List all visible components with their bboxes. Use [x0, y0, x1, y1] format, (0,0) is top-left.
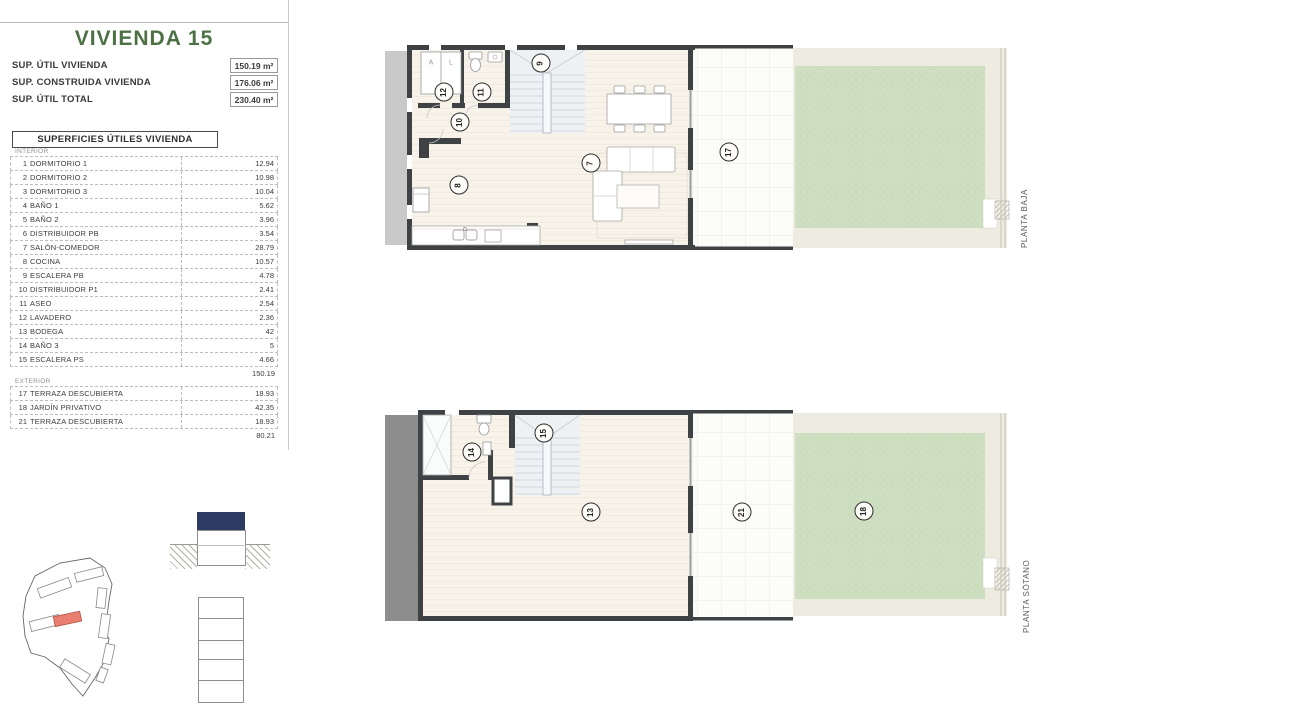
summary-row: SUP. ÚTIL TOTAL 230.40 m² [12, 92, 278, 107]
exterior-table: 17TERRAZA DESCUBIERTA18.93 18JARDÍN PRIV… [10, 386, 278, 442]
row-area: 28.79 [181, 241, 277, 254]
stack-floor [198, 597, 244, 619]
site-plan-thumbnail [12, 556, 142, 711]
row-num: 13 [11, 327, 30, 336]
table-row: 5BAÑO 23.96 [10, 213, 278, 227]
room-marker-10: 10 [451, 113, 470, 132]
row-name: TERRAZA DESCUBIERTA [30, 389, 181, 398]
floor-plan-planta-sotano: 14 15 13 21 18 [385, 408, 1015, 628]
room-marker-21: 21 [733, 503, 752, 522]
row-area: 18.93 [181, 415, 277, 428]
glass-door [690, 90, 692, 128]
row-area: 12.94 [181, 157, 277, 170]
row-num: 7 [11, 243, 30, 252]
room-marker-label: 21 [738, 508, 746, 517]
row-num: 5 [11, 215, 30, 224]
room-marker-11: 11 [473, 83, 492, 102]
retaining-wall-strip [385, 415, 418, 621]
row-name: DORMITORIO 3 [30, 187, 181, 196]
row-area: 4.78 [181, 269, 277, 282]
section-diagram-highlight-floor [197, 512, 245, 530]
planta-sotano-drawing [385, 408, 1015, 628]
interior-section-label: INTERIOR [15, 148, 48, 155]
row-area: 10.04 [181, 185, 277, 198]
row-name: DISTRIBUIDOR P1 [30, 285, 181, 294]
table-row: 10DISTRIBUIDOR P12.41 [10, 283, 278, 297]
room-marker-14: 14 [463, 443, 482, 462]
sink [488, 52, 502, 62]
tv-unit [625, 240, 673, 244]
room-marker-8: 8 [450, 176, 469, 195]
sheet-frame-line-right [288, 0, 289, 450]
room-marker-label: 10 [456, 118, 464, 127]
floor-plan-planta-baja: A L 9 12 11 10 8 7 17 [385, 43, 1015, 255]
room-marker-label: 17 [725, 148, 733, 157]
row-num: 9 [11, 271, 30, 280]
table-row: 3DORMITORIO 310.04 [10, 185, 278, 199]
row-name: ASEO [30, 299, 181, 308]
table-row: 12LAVADERO2.36 [10, 311, 278, 325]
plan-label-planta-sotano: PLANTA SÓTANO [1022, 528, 1031, 633]
row-name: DORMITORIO 1 [30, 159, 181, 168]
table-row: 8COCINA10.57 [10, 255, 278, 269]
row-num: 3 [11, 187, 30, 196]
row-area: 10.57 [181, 255, 277, 268]
row-num: 17 [11, 389, 30, 398]
row-area: 2.54 [181, 297, 277, 310]
table-row: 9ESCALERA PB4.78 [10, 269, 278, 283]
glass-window [690, 533, 692, 576]
stack-diagram [198, 598, 244, 708]
row-name: DORMITORIO 2 [30, 173, 181, 182]
row-name: DISTRIBUIDOR PB [30, 229, 181, 238]
toilet [469, 52, 482, 72]
room-marker-label: 11 [478, 88, 486, 96]
dining-table [607, 86, 671, 132]
room-marker-15: 15 [535, 424, 554, 443]
fridge [413, 188, 429, 212]
row-area: 5 [181, 339, 277, 352]
row-name: BAÑO 2 [30, 215, 181, 224]
stack-floor [198, 680, 244, 703]
row-area: 2.41 [181, 283, 277, 296]
room-marker-label: 18 [860, 507, 868, 516]
room-marker-label: 12 [440, 88, 448, 97]
row-num: 6 [11, 229, 30, 238]
sheet-frame-line-top [0, 22, 288, 23]
table-row: 14BAÑO 35 [10, 339, 278, 353]
row-name: ESCALERA PS [30, 355, 181, 364]
row-num: 1 [11, 159, 30, 168]
row-area: 18.93 [181, 387, 277, 400]
row-name: BODEGA [30, 327, 181, 336]
row-area: 3.54 [181, 227, 277, 240]
room-marker-12: 12 [435, 83, 454, 102]
table-row: 15ESCALERA PS4.66 [10, 353, 278, 367]
room-marker-17: 17 [720, 143, 739, 162]
table-row: 21TERRAZA DESCUBIERTA18.93 [10, 415, 278, 429]
row-name: TERRAZA DESCUBIERTA [30, 417, 181, 426]
planta-baja-drawing [385, 43, 1015, 255]
table-row: 6DISTRIBUIDOR PB3.54 [10, 227, 278, 241]
interior-table: 1DORMITORIO 112.94 2DORMITORIO 210.98 3D… [10, 156, 278, 380]
table-row: 2DORMITORIO 210.98 [10, 171, 278, 185]
terrace-17 [693, 48, 793, 248]
row-num: 2 [11, 173, 30, 182]
summary-value: 150.19 m² [230, 58, 278, 73]
row-num: 8 [11, 257, 30, 266]
ground-hatch-right [245, 544, 270, 569]
row-num: 11 [11, 299, 30, 308]
shower [423, 415, 451, 475]
table-row: 1DORMITORIO 112.94 [10, 157, 278, 171]
plan-label-planta-baja: PLANTA BAJA [1020, 153, 1029, 248]
row-area: 42.35 [181, 401, 277, 414]
stack-floor [198, 640, 244, 660]
garden [793, 48, 1009, 248]
summary-row: SUP. ÚTIL VIVIENDA 150.19 m² [12, 58, 278, 73]
row-num: 18 [11, 403, 30, 412]
stack-floor [198, 659, 244, 681]
summary-label: SUP. CONSTRUIDA VIVIENDA [12, 77, 230, 88]
ground-hatch-left [170, 544, 197, 569]
row-name: SALÓN-COMEDOR [30, 243, 181, 252]
table-row: 17TERRAZA DESCUBIERTA18.93 [10, 387, 278, 401]
table-row: 13BODEGA42 [10, 325, 278, 339]
table-row: 18JARDÍN PRIVATIVO42.35 [10, 401, 278, 415]
row-num: 4 [11, 201, 30, 210]
closet-label-l: L [449, 60, 453, 67]
room-marker-9: 9 [532, 54, 551, 73]
room-marker-label: 7 [587, 161, 595, 165]
row-num: 15 [11, 355, 30, 364]
garden-18 [793, 413, 1009, 616]
exterior-total: 80.21 [10, 429, 278, 442]
row-name: ESCALERA PB [30, 271, 181, 280]
table-row: 11ASEO2.54 [10, 297, 278, 311]
row-name: COCINA [30, 257, 181, 266]
row-name: LAVADERO [30, 313, 181, 322]
summary-value: 176.06 m² [230, 75, 278, 90]
closet-label-a: A [429, 60, 434, 67]
summary-value: 230.40 m² [230, 92, 278, 107]
row-area: 4.66 [181, 353, 277, 366]
sink [483, 442, 491, 455]
row-name: BAÑO 3 [30, 341, 181, 350]
exterior-section-label: EXTERIOR [15, 378, 51, 385]
room-marker-7: 7 [582, 154, 601, 173]
room-marker-label: 15 [540, 429, 548, 438]
glass-window [690, 438, 692, 486]
summary-row: SUP. CONSTRUIDA VIVIENDA 176.06 m² [12, 75, 278, 90]
page-title: VIVIENDA 15 [0, 27, 288, 51]
room-marker-label: 14 [468, 448, 476, 457]
section-ground-line [197, 545, 244, 546]
summary-label: SUP. ÚTIL VIVIENDA [12, 60, 230, 71]
row-area: 2.36 [181, 311, 277, 324]
party-wall-strip [385, 51, 407, 245]
summary-label: SUP. ÚTIL TOTAL [12, 94, 230, 105]
room-marker-label: 8 [455, 183, 463, 187]
wall-niche [493, 478, 511, 504]
table-row: 7SALÓN-COMEDOR28.79 [10, 241, 278, 255]
row-area: 10.98 [181, 171, 277, 184]
coffee-table [617, 185, 659, 208]
room-marker-label: 9 [537, 61, 545, 65]
row-num: 12 [11, 313, 30, 322]
room-marker-13: 13 [582, 503, 601, 522]
table-row: 4BAÑO 15.62 [10, 199, 278, 213]
row-name: JARDÍN PRIVATIVO [30, 403, 181, 412]
row-num: 14 [11, 341, 30, 350]
row-area: 42 [181, 325, 277, 338]
row-num: 10 [11, 285, 30, 294]
room-marker-18: 18 [855, 502, 874, 521]
stack-floor-highlighted [198, 618, 244, 641]
glass-window [690, 170, 692, 198]
row-area: 5.62 [181, 199, 277, 212]
window-gaps [445, 410, 459, 415]
areas-table-title: SUPERFICIES ÚTILES VIVIENDA [12, 131, 218, 148]
room-marker-label: 13 [587, 508, 595, 517]
row-num: 21 [11, 417, 30, 426]
section-diagram-body [197, 530, 246, 566]
row-name: BAÑO 1 [30, 201, 181, 210]
row-area: 3.96 [181, 213, 277, 226]
